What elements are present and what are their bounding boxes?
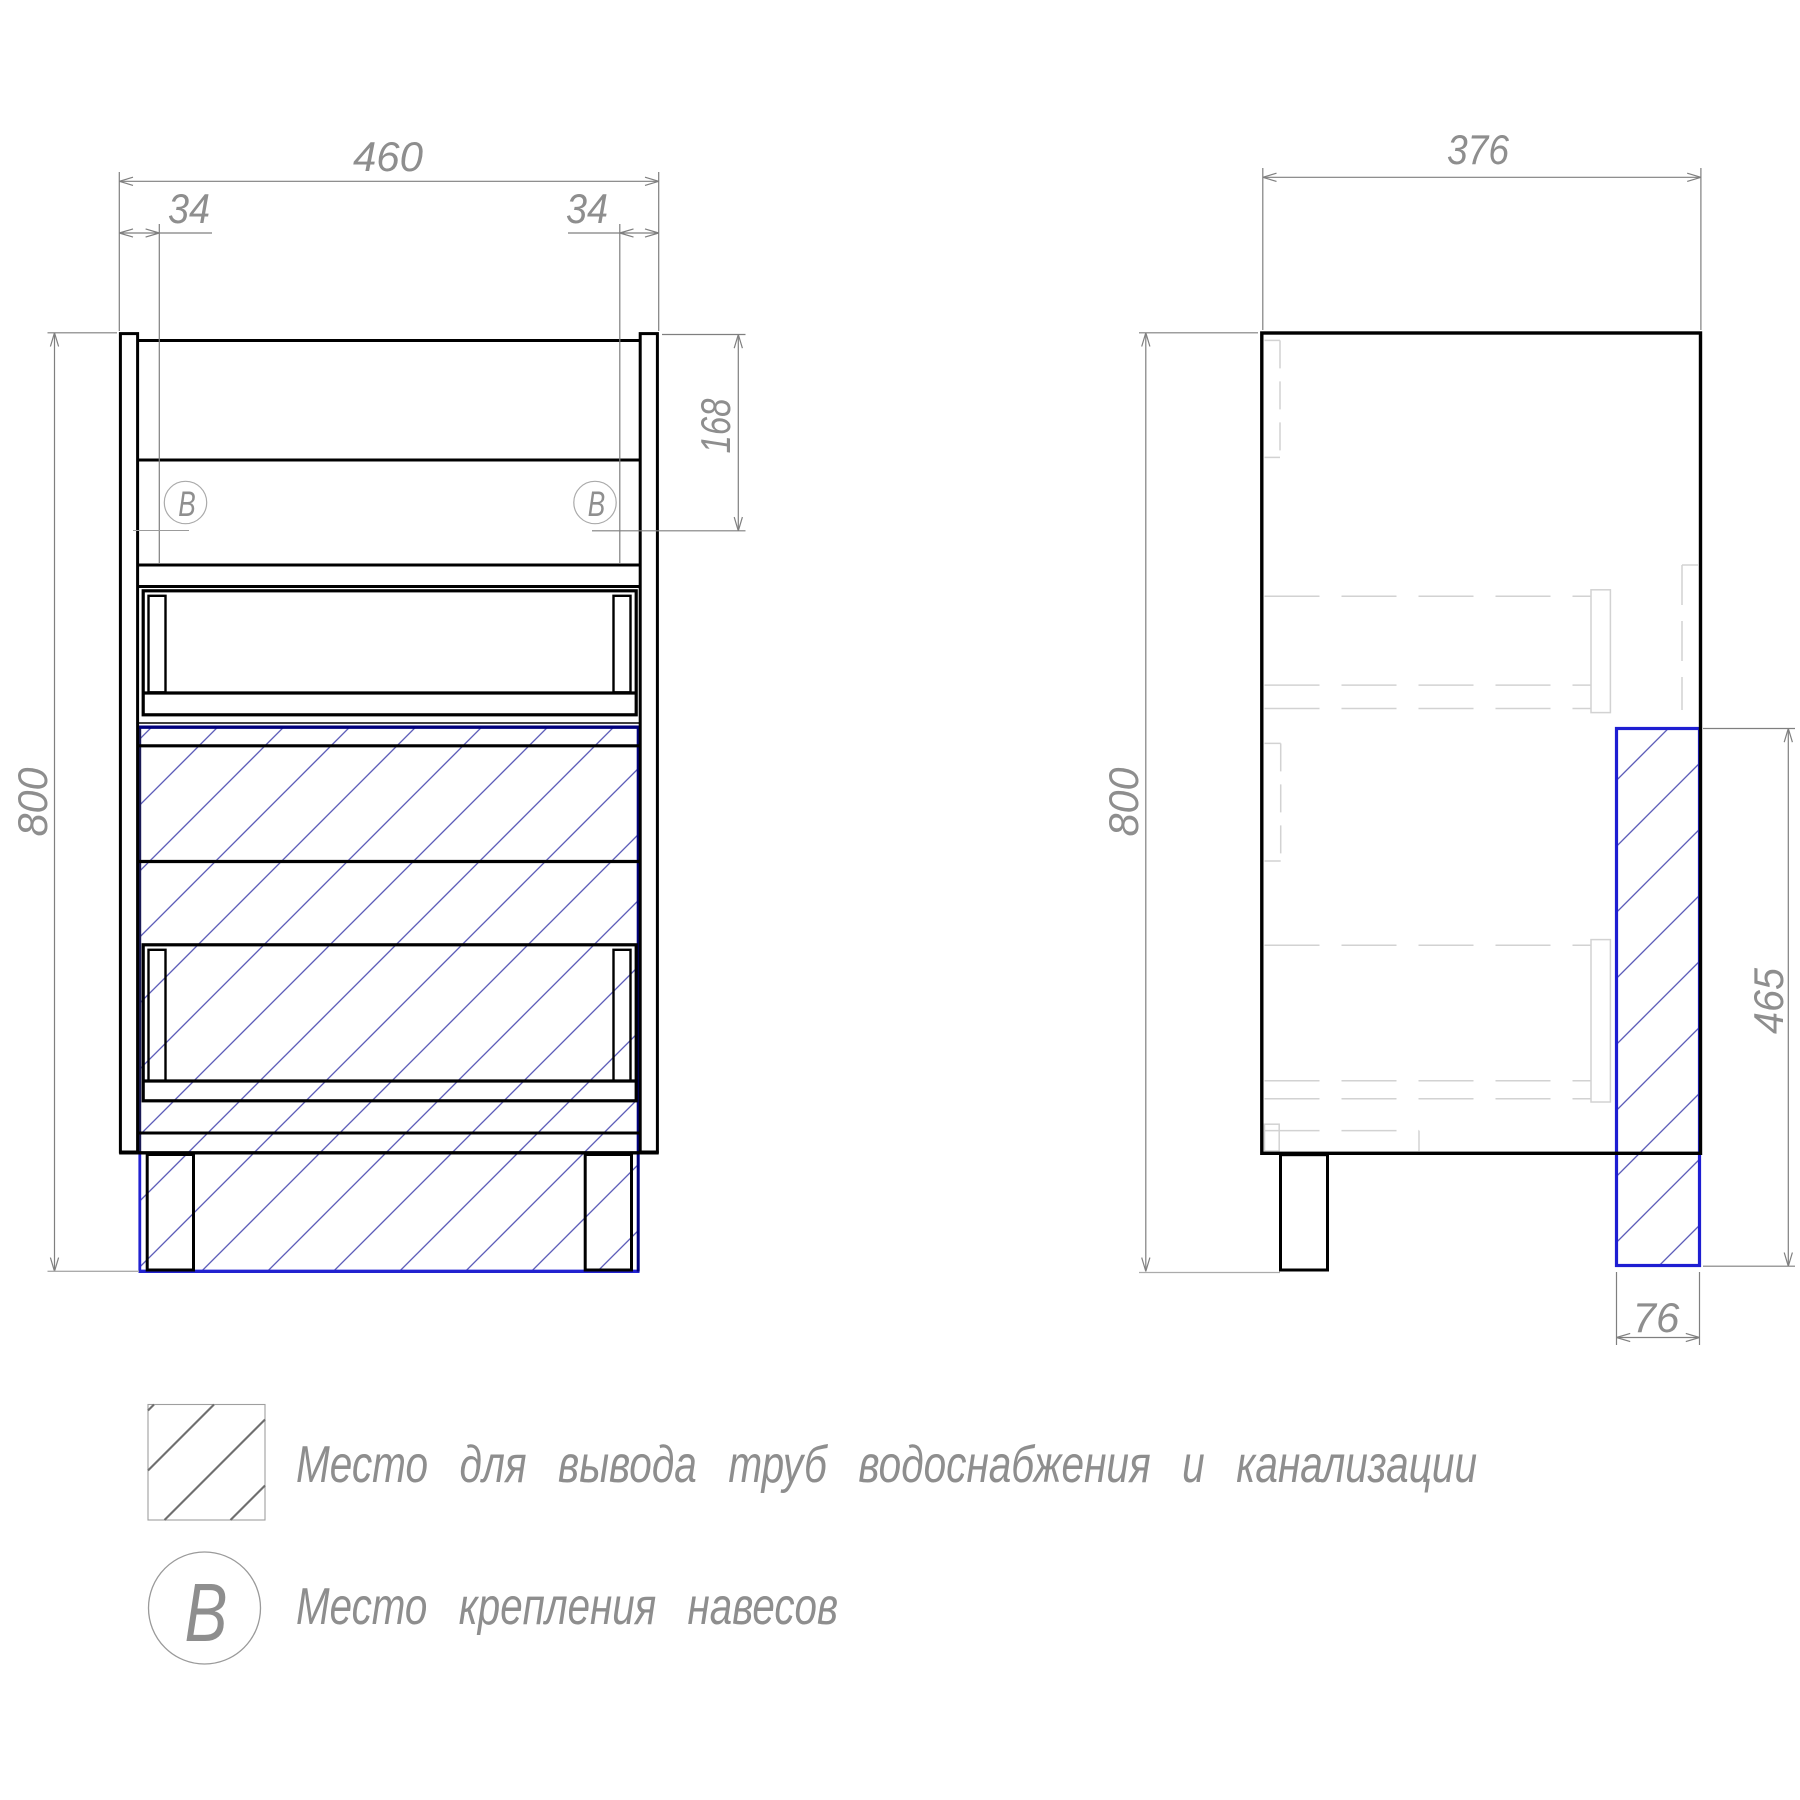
svg-text:76: 76 <box>1633 1294 1680 1341</box>
svg-text:B: B <box>185 1566 228 1659</box>
svg-text:34: 34 <box>566 185 608 232</box>
svg-text:Место для вывода труб водоснаб: Место для вывода труб водоснабжения и ка… <box>296 1436 1477 1494</box>
svg-text:Место крепления навесов: Место крепления навесов <box>296 1578 838 1636</box>
svg-text:B: B <box>178 485 196 524</box>
svg-text:465: 465 <box>1745 967 1792 1034</box>
svg-text:B: B <box>588 485 606 524</box>
svg-text:34: 34 <box>168 185 210 232</box>
svg-text:168: 168 <box>692 398 739 454</box>
svg-text:800: 800 <box>9 767 56 837</box>
svg-text:460: 460 <box>353 133 424 180</box>
svg-text:376: 376 <box>1447 126 1510 173</box>
svg-text:800: 800 <box>1100 767 1147 837</box>
